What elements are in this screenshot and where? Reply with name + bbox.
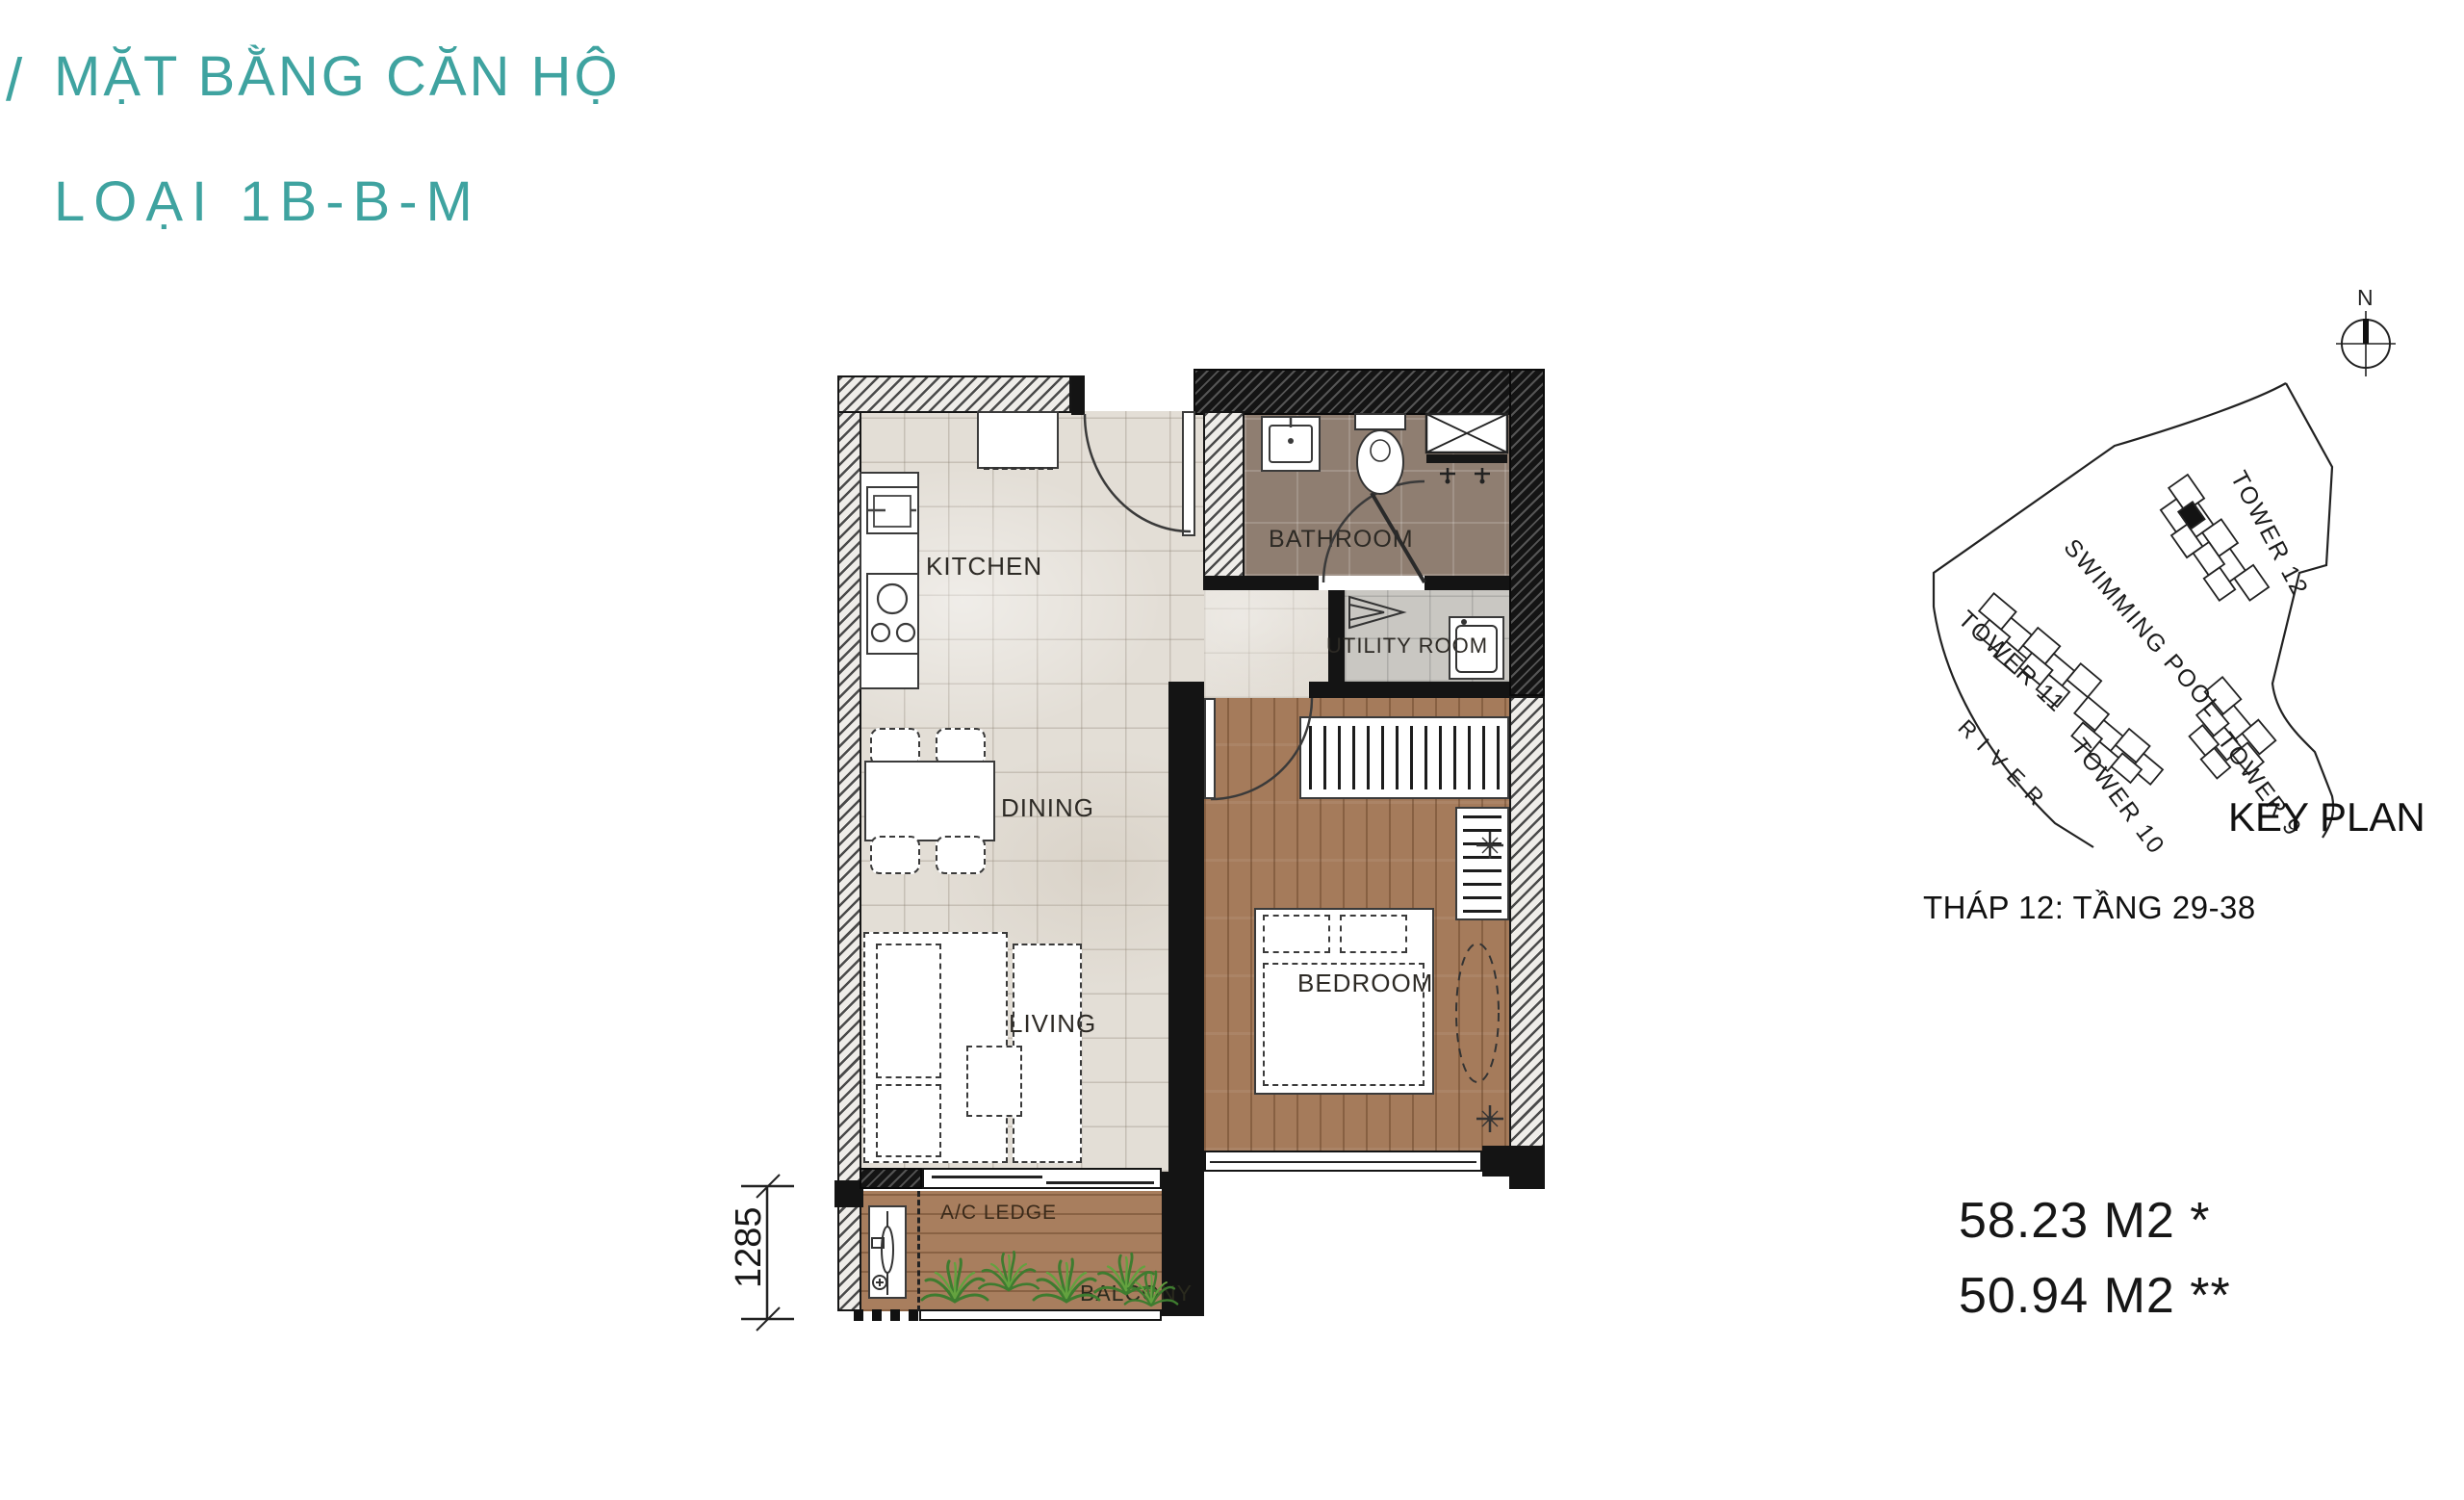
stove-burners-icon	[872, 584, 914, 641]
area-gross: 58.23 M2 *	[1959, 1192, 2211, 1250]
label-river: RIVER	[1953, 714, 2056, 817]
tower11-footprint	[1963, 592, 2101, 719]
area-net: 50.94 M2 **	[1959, 1267, 2231, 1325]
key-plan: N TOWER 12 SWIMMING POOL TOWER 11 TOWER …	[1911, 284, 2454, 919]
key-plan-caption: THÁP 12: TẦNG 29-38	[1923, 890, 2256, 926]
toilet-icon	[1355, 414, 1405, 494]
bathroom-door-leaf-line	[1372, 493, 1424, 582]
ac-fan-icon	[872, 1211, 893, 1295]
page: { "colors": { "accent_teal": "#3fa3a0", …	[0, 0, 2464, 1500]
entry-door-arc	[1085, 414, 1191, 531]
compass-icon: N	[2336, 285, 2396, 376]
bath-sink-drain-icon	[1288, 438, 1294, 444]
ottoman-dashed-icon	[1456, 944, 1499, 1082]
bedroom-door-arc	[1211, 698, 1312, 799]
utility-vent-icon	[1349, 597, 1403, 628]
fan-cross-icon-bottom	[1476, 1105, 1503, 1132]
fan-cross-icon-top	[1476, 832, 1503, 859]
shower-icon	[1426, 414, 1507, 484]
dimension-text: 1285	[729, 1206, 769, 1288]
key-plan-title: KEY PLAN	[2228, 794, 2425, 840]
washer-drum-icon	[1456, 619, 1497, 672]
compass-north-label: N	[2357, 285, 2374, 310]
